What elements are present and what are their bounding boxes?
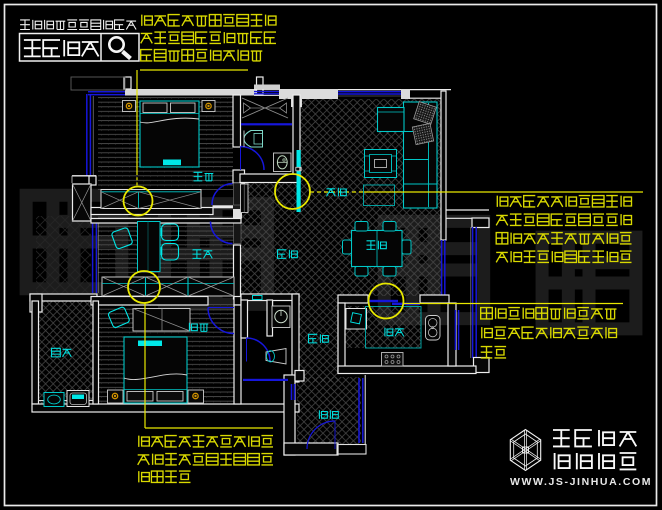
svg-text:WWW.JS-JINHUA.COM: WWW.JS-JINHUA.COM <box>510 476 652 488</box>
